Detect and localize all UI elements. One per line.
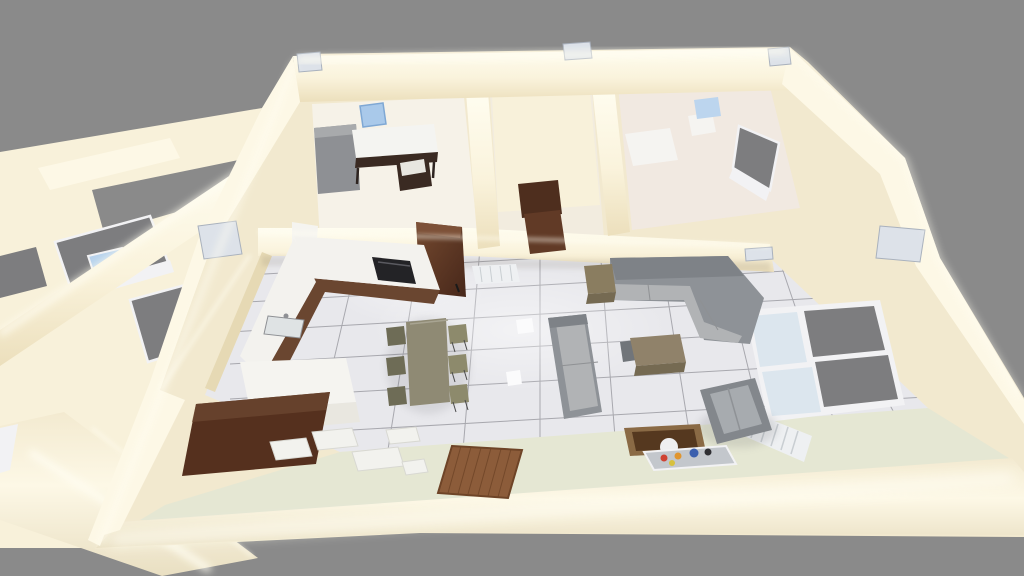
living-window-pane bbox=[815, 355, 898, 407]
kitchen-sink bbox=[264, 316, 304, 338]
dining-set bbox=[386, 318, 470, 414]
floor-light bbox=[506, 370, 522, 386]
side-table bbox=[584, 264, 616, 304]
coffee-table-top bbox=[630, 334, 686, 366]
wooden-mat bbox=[438, 446, 522, 498]
tv-sideboard bbox=[182, 392, 330, 476]
tray-item bbox=[661, 455, 668, 462]
living-window-pane bbox=[804, 306, 885, 357]
tray-item bbox=[669, 460, 675, 466]
living-window-pane bbox=[762, 367, 821, 416]
dining-chair bbox=[448, 354, 468, 374]
dining-chair bbox=[386, 356, 406, 376]
loose-tile bbox=[270, 438, 312, 460]
faucet bbox=[284, 314, 289, 319]
dining-chair bbox=[448, 324, 468, 344]
tray-item bbox=[675, 453, 682, 460]
tray-item bbox=[690, 449, 699, 458]
dining-chairs-right bbox=[448, 324, 469, 412]
dining-chairs-left bbox=[386, 326, 407, 406]
junction-plate bbox=[745, 247, 773, 261]
blue-office-chair bbox=[360, 103, 386, 127]
dining-chair bbox=[386, 326, 406, 346]
desk-leg bbox=[433, 162, 434, 178]
living-window-pane bbox=[751, 312, 807, 367]
render-stage bbox=[0, 0, 1024, 576]
floor-light bbox=[516, 318, 534, 334]
dining-chair bbox=[449, 384, 469, 404]
wall-unit-body bbox=[472, 264, 520, 284]
desk-top bbox=[352, 124, 438, 158]
side-table-top bbox=[584, 264, 616, 294]
corner-sofa-back bbox=[610, 256, 744, 280]
loose-tile bbox=[386, 427, 420, 444]
dining-table-top bbox=[406, 318, 450, 406]
desk-leg bbox=[357, 168, 358, 184]
cooktop bbox=[372, 257, 416, 284]
tray-item bbox=[705, 449, 712, 456]
wall-radiator-unit bbox=[472, 264, 520, 284]
door-leaf bbox=[524, 210, 566, 254]
3d-viewport[interactable] bbox=[0, 0, 1024, 576]
loose-tile bbox=[312, 428, 358, 450]
junction-plate bbox=[876, 226, 925, 262]
loose-tile bbox=[402, 459, 428, 475]
dining-chair bbox=[387, 386, 407, 406]
